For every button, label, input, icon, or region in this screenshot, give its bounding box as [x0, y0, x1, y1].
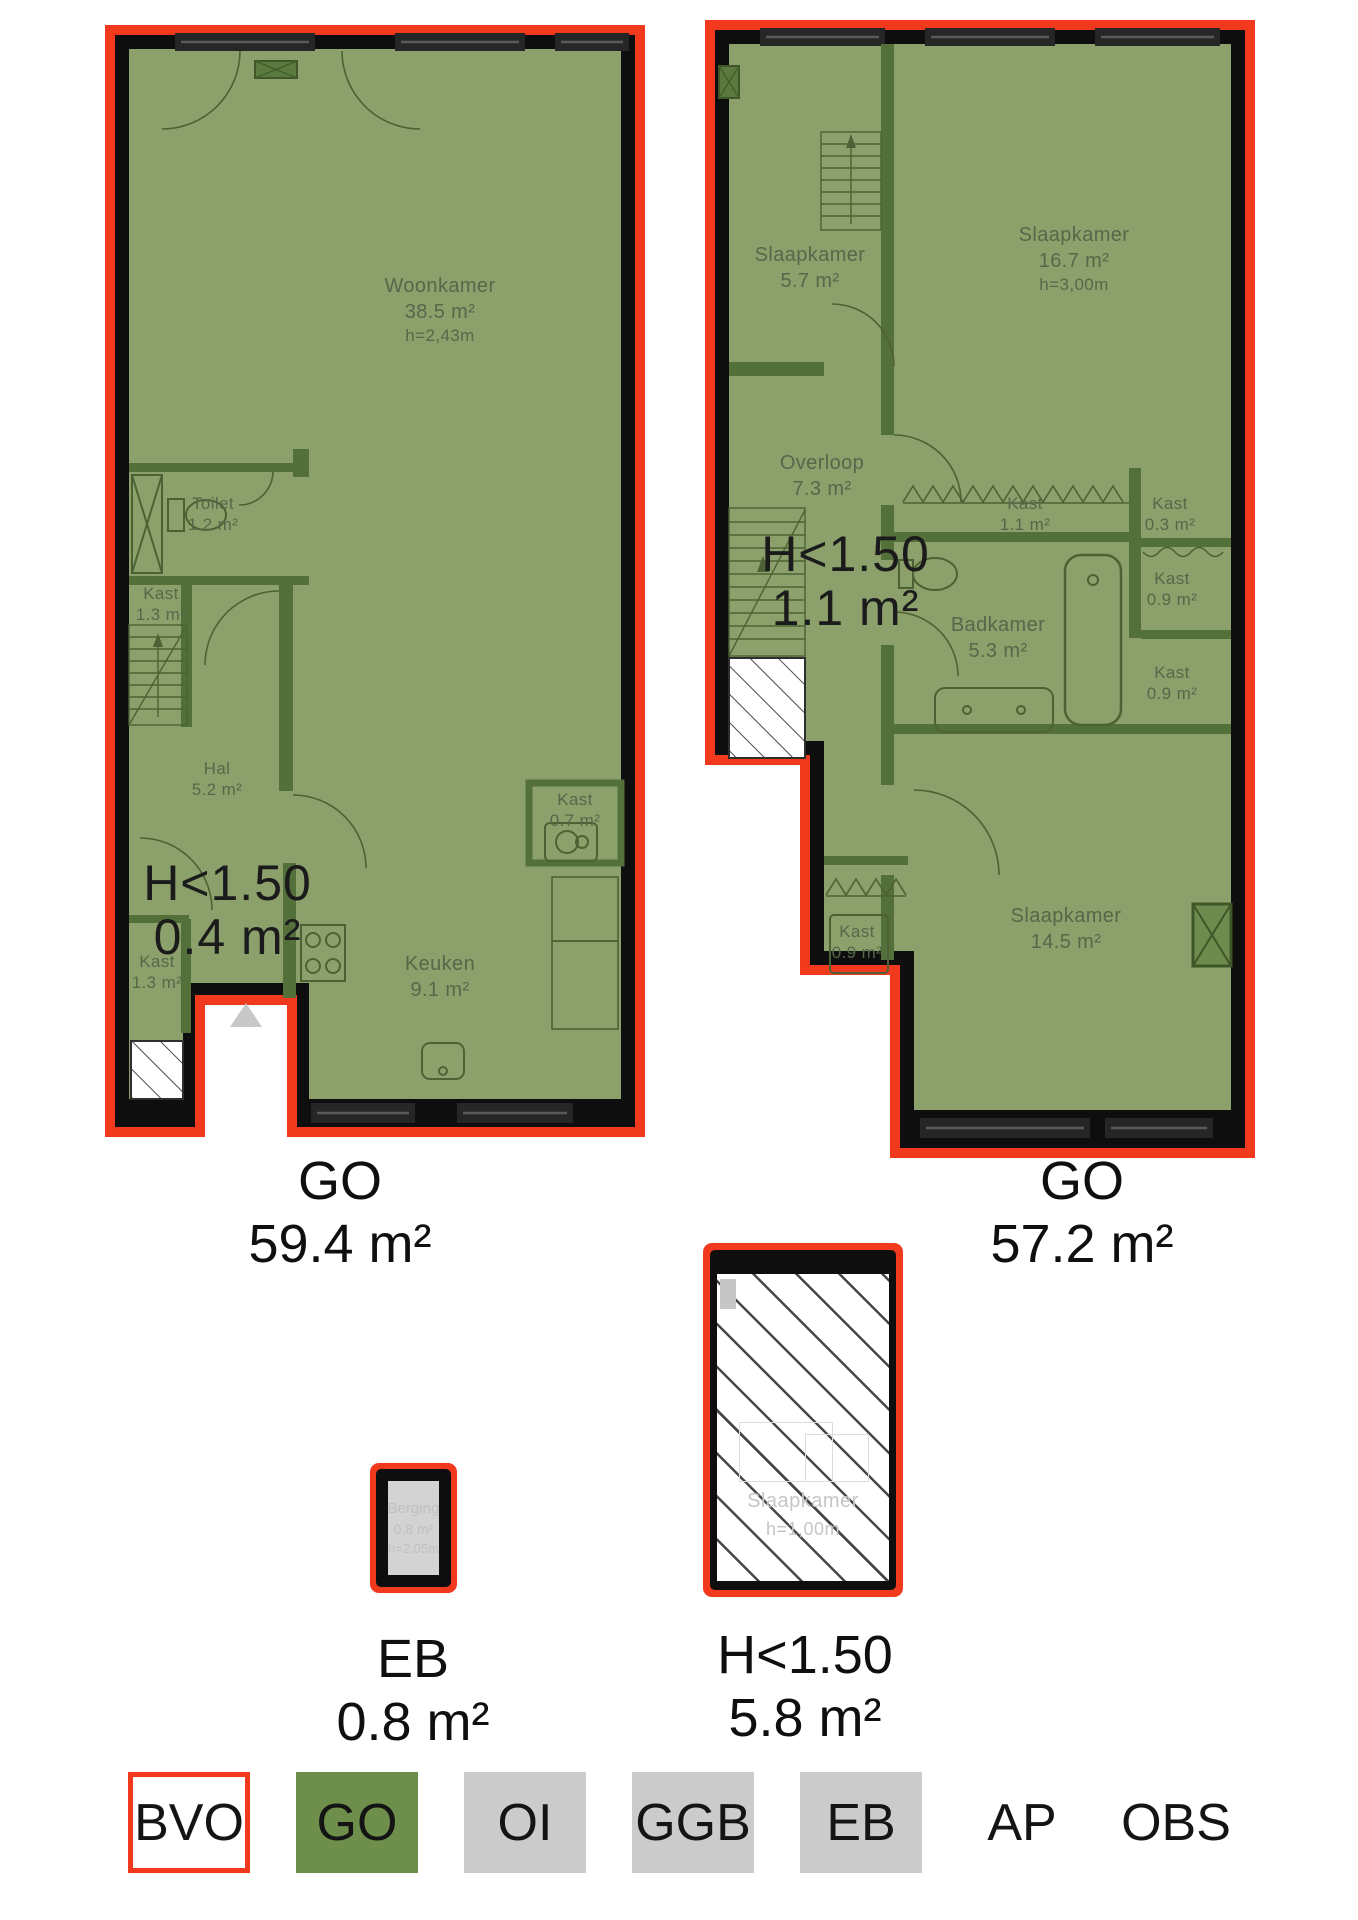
window-band-top [175, 33, 629, 51]
room-label-kast-09-bottom: Kast 0.9 m² [802, 921, 912, 964]
legend-item-ggb: GGB [632, 1772, 754, 1873]
berging-wall: Berging 0.8 m² h=2,05m [376, 1469, 451, 1587]
legend-label: GGB [635, 1793, 751, 1853]
caption-attic: H<1.50 5.8 m² [650, 1624, 960, 1749]
room-label-woonkamer: Woonkamer 38.5 m² h=2,43m [340, 273, 540, 347]
caption-left-plan: GO 59.4 m² [180, 1150, 500, 1275]
room-label-kast-mid: Kast 1.3 m² [111, 583, 211, 626]
room-label-hal: Hal 5.2 m² [157, 758, 277, 801]
room-label-toilet: Toilet 1.2 m² [153, 493, 273, 536]
window-symbol [719, 66, 739, 98]
hatched-area [131, 1041, 183, 1099]
legend-label: OBS [1121, 1793, 1231, 1853]
legend-item-ap: AP [968, 1772, 1076, 1873]
berging-area: 0.8 m² [394, 1519, 434, 1539]
hatched-area [729, 658, 805, 758]
floor-plan-sheet: { "plan_left": { "rooms": { "woonkamer":… [0, 0, 1358, 1920]
legend-item-go: GO [296, 1772, 418, 1873]
entrance-arrow [230, 1003, 262, 1027]
room-label-kast-bottom: Kast 1.3 m² [107, 951, 207, 994]
floor-plan-ground: Woonkamer 38.5 m² h=2,43m Toilet 1.2 m² … [105, 25, 645, 1137]
room-label-kast-09-top: Kast 0.9 m² [1117, 568, 1227, 611]
berging-room: Berging 0.8 m² h=2,05m [388, 1481, 439, 1575]
legend-item-bvo: BVO [128, 1772, 250, 1873]
legend: BVO GO OI GGB EB AP OBS [128, 1772, 1230, 1873]
window-symbol [255, 61, 297, 78]
room-label-attic-slaapkamer: Slaapkamer h=1,00m [717, 1486, 889, 1543]
attic-hatched-area: Slaapkamer h=1,00m [717, 1274, 889, 1581]
berging-height: h=2,05m [388, 1540, 439, 1559]
attic-stair-outline [805, 1434, 869, 1482]
legend-item-oi: OI [464, 1772, 586, 1873]
low-headroom-note: H<1.50 1.1 m² [743, 528, 948, 635]
window-symbol-right [1193, 904, 1231, 966]
floor-plan-upper: Slaapkamer 5.7 m² Slaapkamer 16.7 m² h=3… [705, 20, 1257, 1160]
room-label-slaapkamer-bottom: Slaapkamer 14.5 m² [966, 903, 1166, 955]
room-label-overloop: Overloop 7.3 m² [742, 450, 902, 502]
caption-berging: EB 0.8 m² [263, 1628, 563, 1753]
room-label-kast-09-mid: Kast 0.9 m² [1117, 662, 1227, 705]
room-label-slaapkamer-small: Slaapkamer 5.7 m² [730, 242, 890, 294]
berging-name: Berging [388, 1498, 440, 1520]
attic-window-icon [720, 1279, 736, 1309]
legend-label: BVO [134, 1793, 244, 1853]
room-label-badkamer: Badkamer 5.3 m² [923, 612, 1073, 664]
legend-label: OI [498, 1793, 553, 1853]
room-label-kast-03: Kast 0.3 m² [1115, 493, 1225, 536]
legend-item-eb: EB [800, 1772, 922, 1873]
low-headroom-note: H<1.50 0.4 m² [130, 857, 325, 964]
legend-label: AP [987, 1793, 1056, 1853]
plan-attic: Slaapkamer h=1,00m [703, 1243, 903, 1597]
window-band-top [760, 28, 1220, 46]
legend-label: EB [826, 1793, 895, 1853]
plan-berging: Berging 0.8 m² h=2,05m [370, 1463, 457, 1593]
room-label-kast-small: Kast 0.7 m² [530, 789, 620, 832]
room-label-keuken: Keuken 9.1 m² [360, 951, 520, 1003]
caption-right-plan: GO 57.2 m² [922, 1150, 1242, 1275]
room-label-kast-11: Kast 1.1 m² [965, 493, 1085, 536]
legend-item-obs: OBS [1122, 1772, 1230, 1873]
window-band-bottom [920, 1118, 1213, 1138]
room-label-slaapkamer-large: Slaapkamer 16.7 m² h=3,00m [974, 222, 1174, 296]
legend-label: GO [317, 1793, 398, 1853]
